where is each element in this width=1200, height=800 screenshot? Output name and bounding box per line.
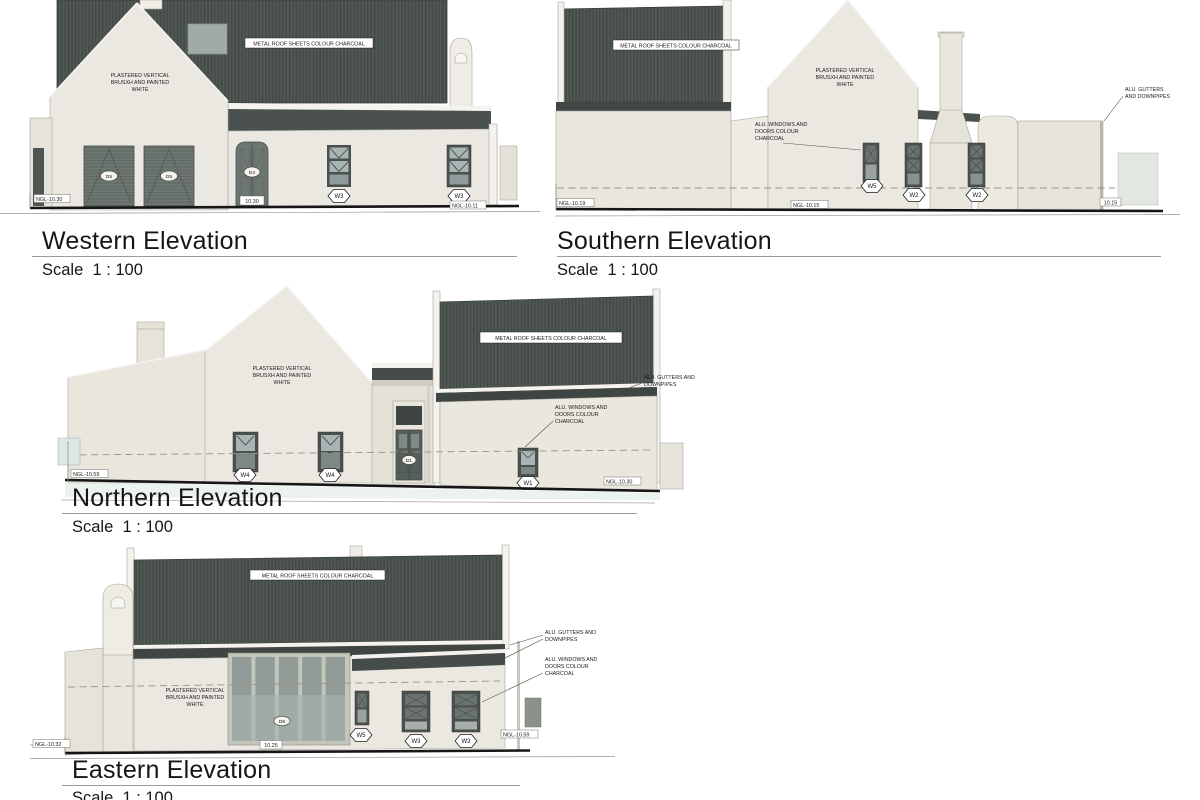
drawing-sheet: METAL ROOF SHEETS COLOUR CHARCOAL PLASTE… xyxy=(0,0,1200,800)
eastern-left-wall xyxy=(65,648,103,755)
ngl-level-left: NGL-10.32 xyxy=(35,742,61,748)
northern-scale-label: Scale 1 : 100 xyxy=(72,518,173,537)
wall-note-line: PLASTERED VERTICAL xyxy=(111,73,170,79)
windows-note-line: ALU. WINDOWS AND xyxy=(555,405,608,411)
window-tag-text: W3 xyxy=(455,194,465,200)
level-right: 10.15 xyxy=(1104,200,1118,206)
ngl-level-left: NGL-10.19 xyxy=(559,201,585,207)
western-scale-label: Scale 1 : 100 xyxy=(42,261,143,280)
wall-note-line: BRUSXH AND PAINTED xyxy=(166,695,225,701)
windows-note-line: ALU. WINDOWS AND xyxy=(545,657,598,663)
ngl-level-right: NGL-10.11 xyxy=(452,203,478,209)
entrance-door-d4: D4 10.30 xyxy=(236,142,268,206)
roof-note-text: METAL ROOF SHEETS COLOUR CHARCOAL xyxy=(253,42,365,48)
window-w3-right xyxy=(447,145,471,187)
southern-gable: PLASTERED VERTICAL BRUSXH AND PAINTED WH… xyxy=(768,0,918,210)
window-tag-text: W2 xyxy=(910,193,920,199)
ngl-level-mid: NGL-10.15 xyxy=(793,203,819,209)
northern-elevation-title: Northern Elevation xyxy=(72,484,283,513)
window-w4-right xyxy=(318,432,343,472)
roof-note-text: METAL ROOF SHEETS COLOUR CHARCOAL xyxy=(262,574,374,580)
wall-note-line: PLASTERED VERTICAL xyxy=(253,366,312,372)
wall-note-line: BRUSXH AND PAINTED xyxy=(816,75,875,81)
wing-corner-pilaster xyxy=(489,124,497,205)
northern-left-wall xyxy=(68,349,210,483)
window-tag-text: W1 xyxy=(524,481,534,487)
window-tag-text: W3 xyxy=(412,739,422,745)
gutters-note-line: ALU. GUTTERS AND xyxy=(545,630,596,636)
garage-door-tag: D5 xyxy=(106,174,112,180)
southern-left-roof xyxy=(556,0,731,111)
eastern-roof-note: METAL ROOF SHEETS COLOUR CHARCOAL xyxy=(250,570,385,580)
gutters-note-line: DOWNPIPES xyxy=(644,382,677,388)
window-w4-left xyxy=(233,432,258,472)
wall-note-line: WHITE xyxy=(836,82,854,88)
western-elevation-drawing: METAL ROOF SHEETS COLOUR CHARCOAL PLASTE… xyxy=(0,0,540,222)
wall-note-line: BRUSXH AND PAINTED xyxy=(253,373,312,379)
window-w5 xyxy=(355,691,369,725)
windows-note-line: DOORS COLOUR xyxy=(555,412,599,418)
title-underline xyxy=(62,785,520,786)
wall-note-line: PLASTERED VERTICAL xyxy=(166,688,225,694)
western-wing-roof xyxy=(228,103,491,131)
southern-elevation-drawing: METAL ROOF SHEETS COLOUR CHARCOAL PLASTE… xyxy=(555,0,1180,222)
wall-note-line: WHITE xyxy=(186,702,204,708)
northern-right-block xyxy=(433,289,660,491)
southern-elevation-title: Southern Elevation xyxy=(557,227,772,256)
window-w2-right xyxy=(968,143,985,187)
window-tag-text: W4 xyxy=(326,473,336,479)
wall-note-line: PLASTERED VERTICAL xyxy=(816,68,875,74)
ngl-level-left: NGL-10.30 xyxy=(36,197,62,203)
gable-pilaster-right xyxy=(502,545,509,649)
entrance-door-d1: D1 xyxy=(396,430,422,480)
wall-note-line: BRUSXH AND PAINTED xyxy=(111,80,170,86)
southern-left-wall xyxy=(556,111,731,210)
window-w5 xyxy=(863,143,879,182)
windows-note-line: CHARCOAL xyxy=(545,671,574,677)
door-tag: D4 xyxy=(249,170,255,176)
title-underline xyxy=(557,256,1161,257)
arched-parapet xyxy=(103,584,133,660)
western-roof-note: METAL ROOF SHEETS COLOUR CHARCOAL xyxy=(245,38,373,48)
downpipe xyxy=(1100,121,1103,210)
garage-door-tag: D5 xyxy=(166,174,172,180)
window-w3-right xyxy=(452,691,480,732)
eastern-main-roof xyxy=(134,555,502,645)
eastern-left-pier xyxy=(103,655,133,753)
windows-note-line: ALU. WINDOWS AND xyxy=(755,122,808,128)
window-tag-text: W3 xyxy=(462,739,472,745)
window-tag-text: W5 xyxy=(357,733,367,739)
window-tag-text: W2 xyxy=(973,193,983,199)
door-level: 10.30 xyxy=(245,199,259,205)
gutters-note-line: AND DOWNPIPES xyxy=(1125,94,1170,100)
southern-scale-label: Scale 1 : 100 xyxy=(557,261,658,280)
garage-door-right: D5 xyxy=(144,146,194,206)
roof-note-text: METAL ROOF SHEETS COLOUR CHARCOAL xyxy=(620,44,732,50)
wall-note-line: WHITE xyxy=(273,380,291,386)
title-underline xyxy=(62,513,637,514)
eastern-elevation-drawing: METAL ROOF SHEETS COLOUR CHARCOAL PLASTE… xyxy=(30,543,615,767)
neighbour-block xyxy=(525,698,541,727)
ngl-level-right: NGL-10.30 xyxy=(606,479,632,485)
boundary-marker xyxy=(58,438,80,465)
title-underline xyxy=(32,256,517,257)
southern-gutters-note: ALU. GUTTERS AND DOWNPIPES xyxy=(1104,87,1170,121)
gutters-note-line: ALU. GUTTERS AND xyxy=(644,375,695,381)
gutters-note-line: ALU. GUTTERS xyxy=(1125,87,1164,93)
window-w3-left xyxy=(402,691,430,732)
arch-opening xyxy=(455,53,467,63)
eastern-scale-label: Scale 1 : 100 xyxy=(72,789,173,800)
southern-roof-note: METAL ROOF SHEETS COLOUR CHARCOAL xyxy=(613,40,739,50)
western-elevation-title: Western Elevation xyxy=(42,227,248,256)
northern-elevation-drawing: D1 PLASTERED VERTICAL BRUSXH AND PAINTED… xyxy=(55,283,705,509)
ngl-level-left: NGL-10.59 xyxy=(73,472,99,478)
southern-right-wall xyxy=(1018,121,1103,210)
door-tag: D1 xyxy=(406,458,412,464)
northern-roof-note: METAL ROOF SHEETS COLOUR CHARCOAL xyxy=(480,332,622,343)
windows-note-line: DOORS COLOUR xyxy=(545,664,589,670)
windows-note-line: CHARCOAL xyxy=(555,419,584,425)
southern-chimney xyxy=(930,32,972,211)
door-tag: D6 xyxy=(279,719,285,725)
windows-note-line: CHARCOAL xyxy=(755,136,784,142)
window-w1 xyxy=(518,448,538,477)
ngl-level-right: NGL-10.59 xyxy=(503,732,529,738)
garage-door-left: D5 xyxy=(84,146,134,206)
window-tag-text: W3 xyxy=(335,194,345,200)
northern-porch: D1 xyxy=(372,363,435,486)
downpipe xyxy=(427,386,430,483)
sliding-door-d6: D6 10.25 xyxy=(228,653,350,749)
southern-garden-wall xyxy=(1118,153,1158,205)
windows-note-line: DOORS COLOUR xyxy=(755,129,799,135)
wall-note-line: WHITE xyxy=(131,87,149,93)
northern-right-garden-wall xyxy=(660,443,683,489)
ridge-chimney xyxy=(140,0,162,9)
western-right-garden-wall xyxy=(500,146,517,200)
eastern-elevation-title: Eastern Elevation xyxy=(72,756,271,785)
window-w3-left xyxy=(327,145,351,187)
skylight xyxy=(188,24,227,54)
window-tag-text: W4 xyxy=(241,473,251,479)
roof-note-text: METAL ROOF SHEETS COLOUR CHARCOAL xyxy=(495,336,607,342)
door-transom xyxy=(396,406,422,425)
gutters-note-line: DOWNPIPES xyxy=(545,637,578,643)
window-tag-text: W5 xyxy=(868,184,878,190)
door-level: 10.25 xyxy=(264,743,278,749)
window-w2-left xyxy=(905,143,922,187)
